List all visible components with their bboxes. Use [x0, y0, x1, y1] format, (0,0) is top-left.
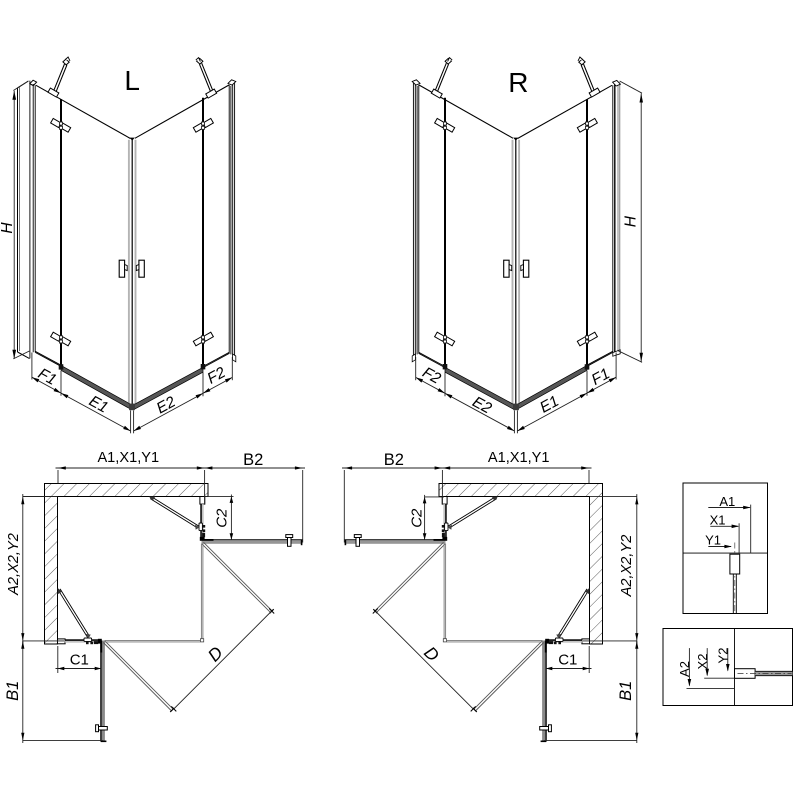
- svg-text:H: H: [622, 215, 639, 227]
- svg-text:B2: B2: [384, 451, 404, 469]
- svg-text:A2: A2: [677, 661, 692, 677]
- svg-text:B1: B1: [4, 681, 22, 701]
- svg-text:L: L: [124, 65, 140, 96]
- svg-text:X2: X2: [695, 654, 710, 670]
- svg-text:H: H: [0, 222, 16, 234]
- svg-text:Y1: Y1: [705, 533, 721, 548]
- svg-text:X1: X1: [710, 512, 726, 527]
- svg-text:A1,X1,Y1: A1,X1,Y1: [488, 450, 550, 466]
- svg-text:C2: C2: [408, 508, 425, 528]
- svg-text:A2,X2,Y2: A2,X2,Y2: [6, 533, 22, 596]
- svg-text:B1: B1: [617, 681, 635, 701]
- svg-text:R: R: [508, 67, 528, 98]
- svg-text:A2,X2,Y2: A2,X2,Y2: [619, 535, 635, 598]
- svg-text:B2: B2: [243, 451, 263, 469]
- svg-text:C2: C2: [213, 508, 230, 528]
- svg-text:C1: C1: [558, 651, 577, 668]
- svg-text:A1: A1: [719, 494, 735, 509]
- svg-text:A1,X1,Y1: A1,X1,Y1: [97, 450, 159, 466]
- svg-text:Y2: Y2: [716, 648, 731, 664]
- svg-text:C1: C1: [70, 651, 89, 668]
